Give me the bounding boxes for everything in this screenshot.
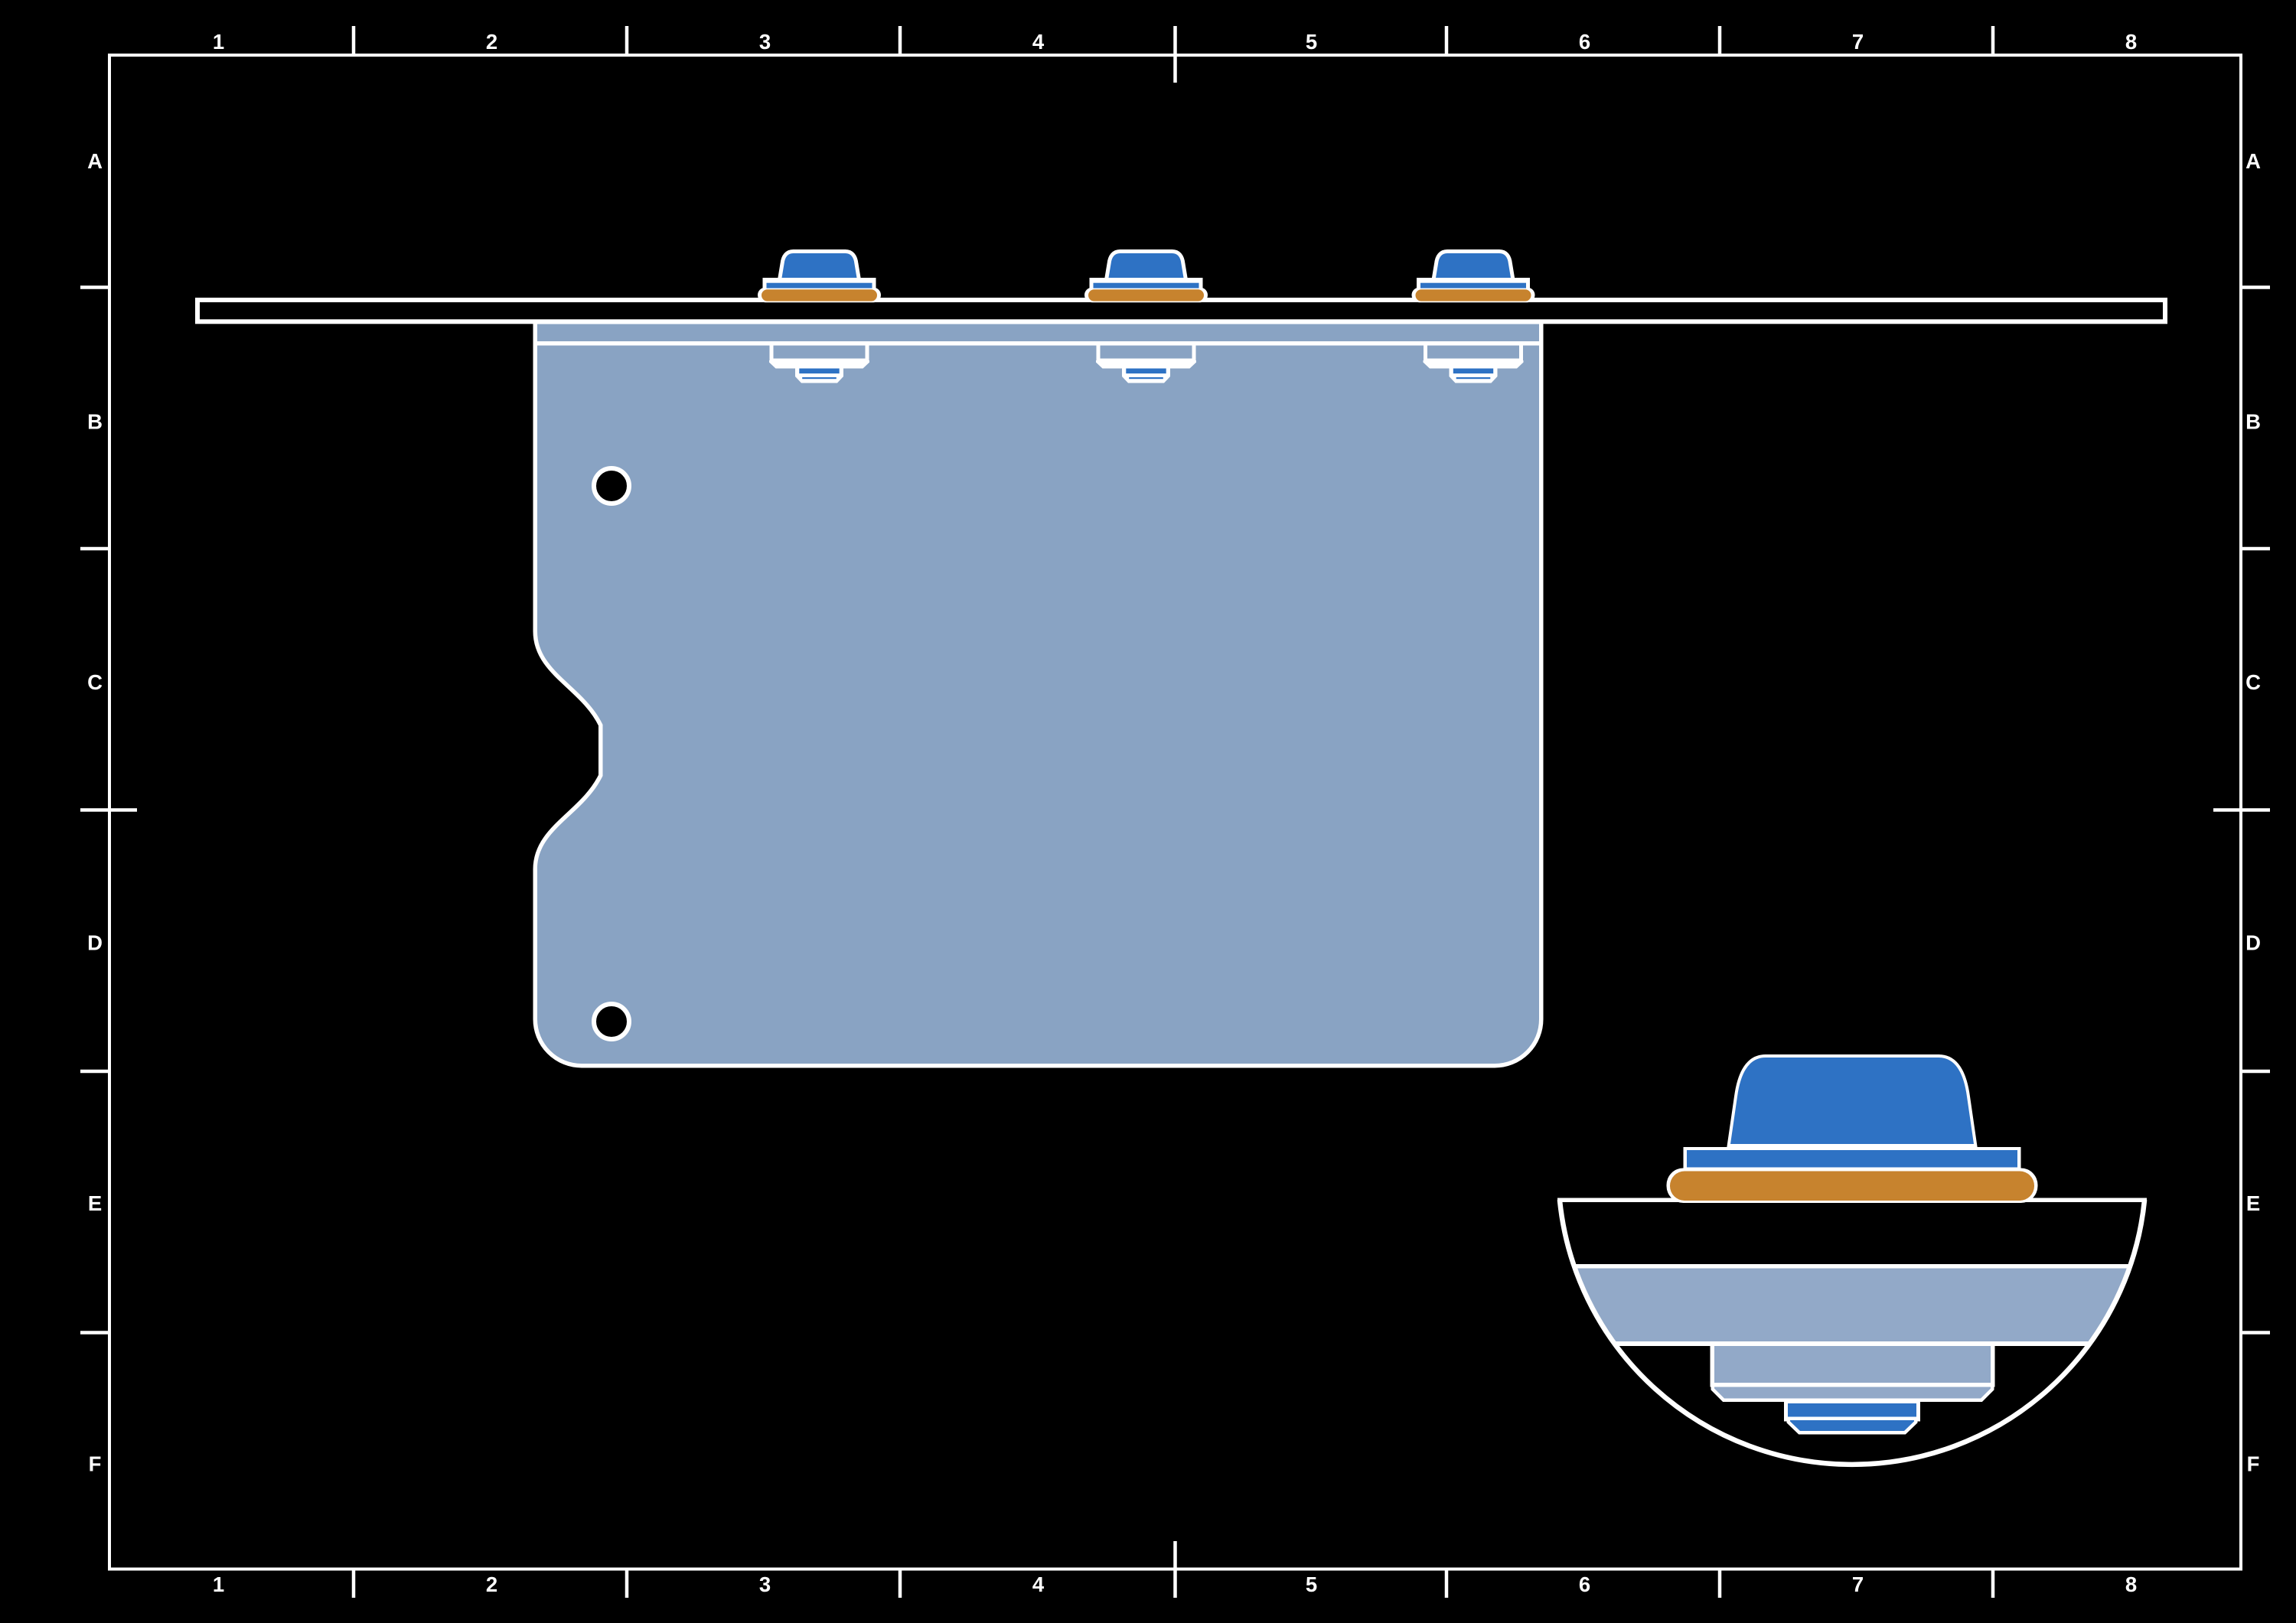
svg-text:D: D xyxy=(87,931,103,955)
svg-text:A: A xyxy=(87,149,103,173)
svg-text:8: 8 xyxy=(2125,1572,2137,1596)
svg-text:F: F xyxy=(89,1452,102,1476)
svg-text:B: B xyxy=(2245,410,2261,434)
svg-text:2: 2 xyxy=(486,1572,497,1596)
svg-text:6: 6 xyxy=(1579,1572,1590,1596)
svg-text:E: E xyxy=(2246,1191,2260,1215)
svg-text:A: A xyxy=(2245,149,2261,173)
svg-text:C: C xyxy=(2245,670,2261,694)
svg-text:7: 7 xyxy=(1852,1572,1864,1596)
svg-text:1: 1 xyxy=(213,30,224,54)
svg-text:F: F xyxy=(2247,1452,2260,1476)
svg-text:4: 4 xyxy=(1032,30,1045,54)
svg-text:3: 3 xyxy=(759,1572,771,1596)
svg-text:E: E xyxy=(88,1191,102,1215)
svg-text:C: C xyxy=(87,670,103,694)
svg-text:2: 2 xyxy=(486,30,497,54)
svg-text:B: B xyxy=(87,410,103,434)
svg-text:D: D xyxy=(2245,931,2261,955)
svg-text:3: 3 xyxy=(759,30,771,54)
svg-text:7: 7 xyxy=(1852,30,1864,54)
svg-text:8: 8 xyxy=(2125,30,2137,54)
svg-text:4: 4 xyxy=(1032,1572,1045,1596)
svg-text:5: 5 xyxy=(1306,1572,1317,1596)
svg-text:6: 6 xyxy=(1579,30,1590,54)
svg-text:1: 1 xyxy=(213,1572,224,1596)
svg-text:5: 5 xyxy=(1306,30,1317,54)
